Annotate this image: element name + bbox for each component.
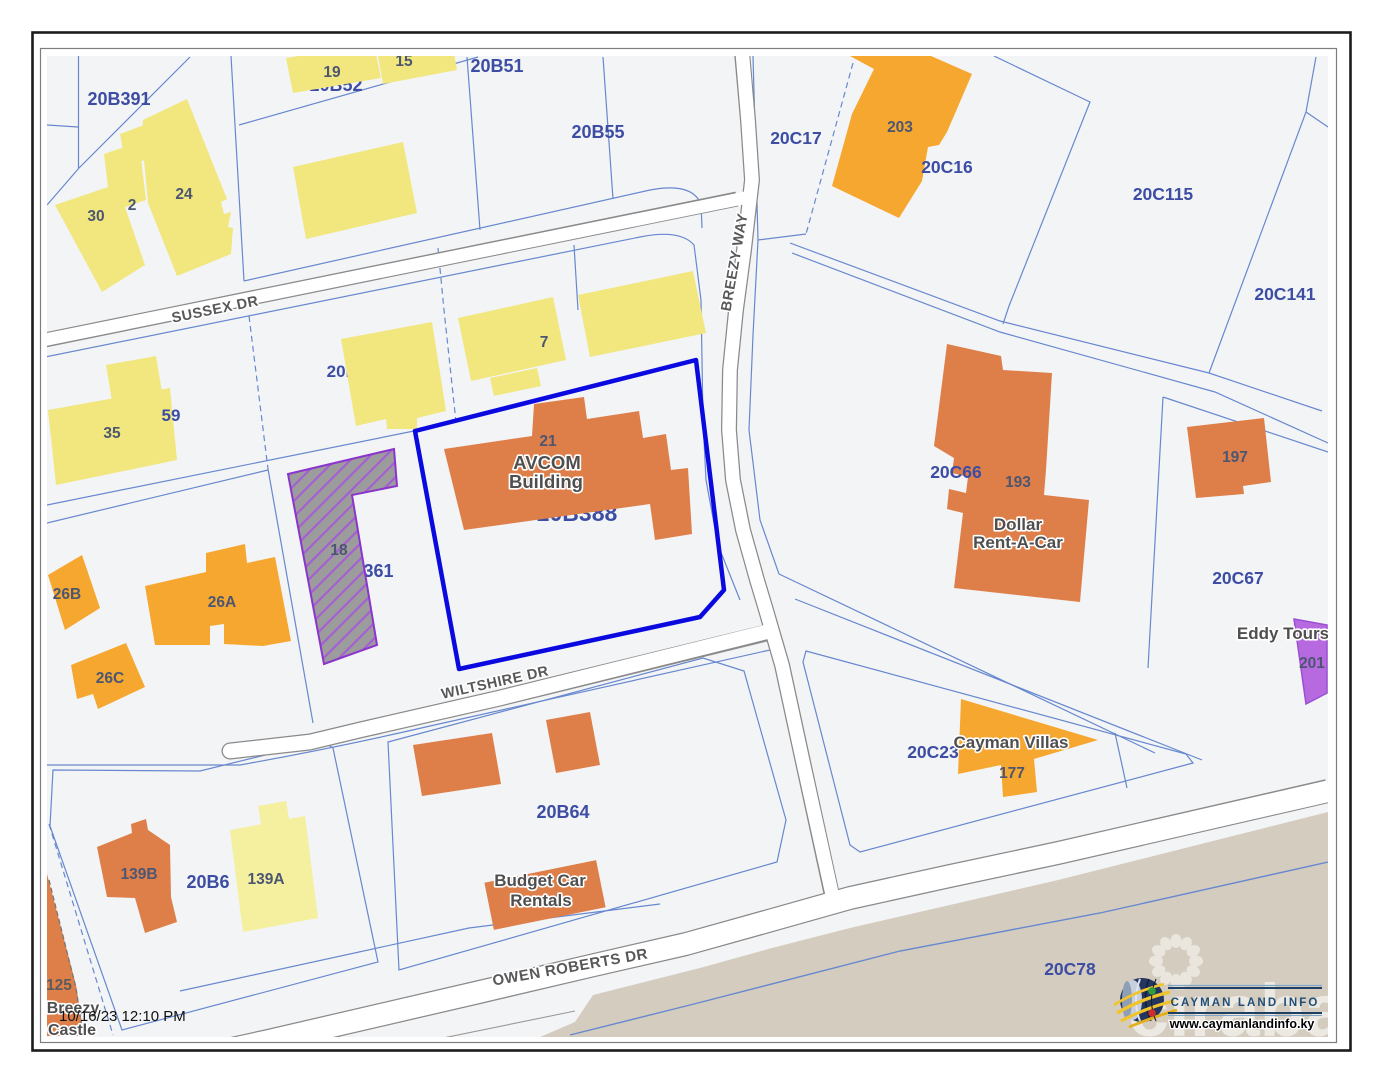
svg-text:18: 18 <box>330 542 348 559</box>
svg-text:20B64: 20B64 <box>536 802 589 822</box>
svg-text:197: 197 <box>1222 449 1248 466</box>
svg-text:30: 30 <box>87 208 104 225</box>
svg-text:20B51: 20B51 <box>470 56 523 76</box>
svg-text:20B6: 20B6 <box>186 872 229 892</box>
svg-text:201: 201 <box>1299 655 1325 672</box>
svg-text:Rent-A-Car: Rent-A-Car <box>973 533 1063 552</box>
svg-text:Rentals: Rentals <box>510 891 571 910</box>
svg-text:Cayman Villas: Cayman Villas <box>954 733 1069 752</box>
svg-text:139A: 139A <box>247 871 284 888</box>
svg-text:24: 24 <box>175 186 193 203</box>
svg-text:20C141: 20C141 <box>1254 284 1316 304</box>
svg-text:20C17: 20C17 <box>770 128 822 148</box>
svg-text:125: 125 <box>46 977 72 994</box>
svg-text:www.caymanlandinfo.ky: www.caymanlandinfo.ky <box>1169 1017 1315 1031</box>
svg-text:20C23: 20C23 <box>907 742 959 762</box>
svg-text:20C66: 20C66 <box>930 462 982 482</box>
svg-text:26C: 26C <box>96 670 124 687</box>
svg-text:Budget Car: Budget Car <box>494 871 586 890</box>
svg-text:Dollar: Dollar <box>994 515 1043 534</box>
svg-text:20C67: 20C67 <box>1212 568 1264 588</box>
svg-text:CAYMAN LAND INFO: CAYMAN LAND INFO <box>1171 997 1320 1009</box>
svg-text:177: 177 <box>999 765 1025 782</box>
svg-text:AVCOM: AVCOM <box>513 452 581 473</box>
svg-text:139B: 139B <box>120 866 157 883</box>
svg-text:20C78: 20C78 <box>1044 959 1096 979</box>
svg-text:Building: Building <box>509 471 583 492</box>
svg-text:59: 59 <box>162 406 181 425</box>
svg-text:19: 19 <box>323 64 341 81</box>
svg-text:35: 35 <box>103 425 121 442</box>
svg-text:20B391: 20B391 <box>87 89 150 109</box>
svg-text:20C16: 20C16 <box>921 157 973 177</box>
svg-text:21: 21 <box>539 433 557 450</box>
svg-text:20B55: 20B55 <box>571 122 624 142</box>
svg-text:10/16/23 12:10 PM: 10/16/23 12:10 PM <box>59 1008 186 1025</box>
svg-text:7: 7 <box>540 334 549 351</box>
svg-text:20C115: 20C115 <box>1133 184 1194 204</box>
svg-text:193: 193 <box>1005 474 1031 491</box>
svg-text:203: 203 <box>887 119 913 136</box>
svg-text:2: 2 <box>128 197 137 214</box>
svg-text:Eddy Tours: Eddy Tours <box>1237 624 1329 643</box>
svg-text:26B: 26B <box>53 586 81 603</box>
svg-text:26A: 26A <box>208 594 236 611</box>
